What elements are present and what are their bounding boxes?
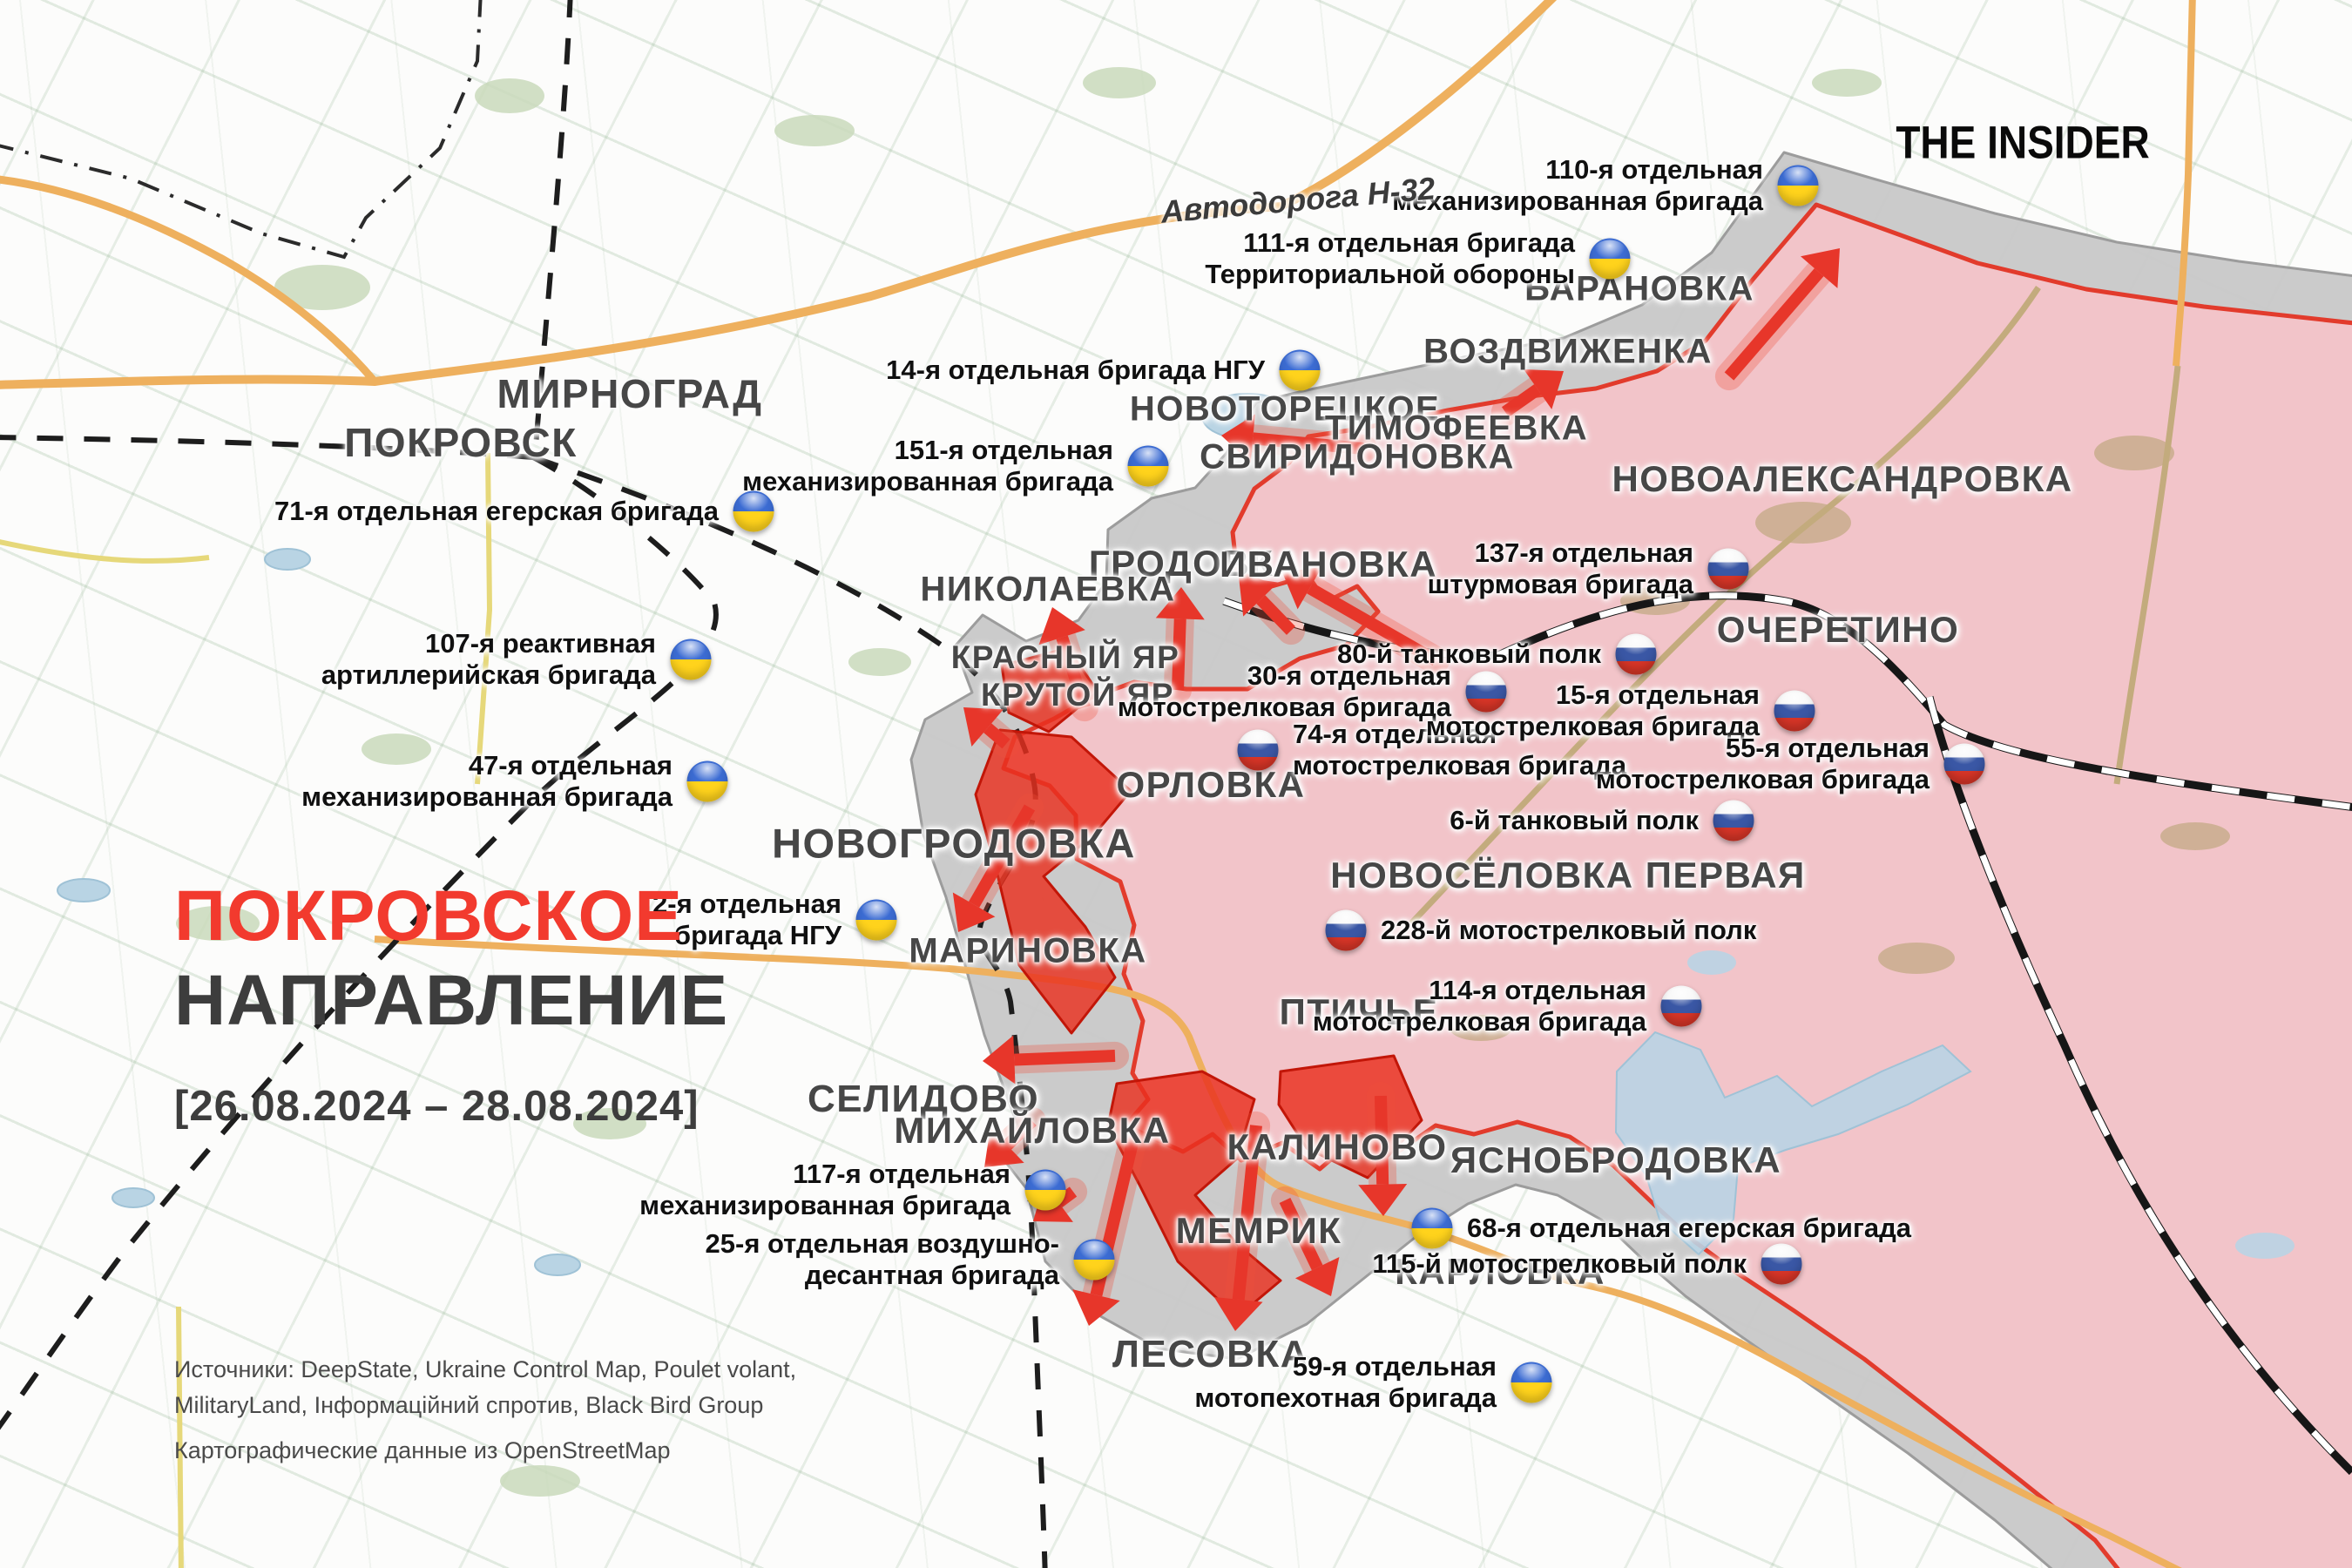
map-infographic: МИРНОГРАДПОКРОВСКБАРАНОВКАВОЗДВИЖЕНКАНОВ… xyxy=(0,0,2352,1568)
admin-boundary xyxy=(0,0,481,257)
railways xyxy=(0,0,1045,1568)
sources-line1: Источники: DeepState, Ukraine Control Ma… xyxy=(174,1352,796,1388)
title-line1: ПОКРОВСКОЕ xyxy=(174,875,728,959)
sources-block: Источники: DeepState, Ukraine Control Ma… xyxy=(174,1352,796,1469)
sources-line3: Картографические данные из OpenStreetMap xyxy=(174,1433,796,1469)
map-canvas xyxy=(0,0,2352,1568)
title-line2: НАПРАВЛЕНИЕ xyxy=(174,959,728,1044)
sources-line2: MilitaryLand, Інформаційний спротив, Bla… xyxy=(174,1388,796,1423)
title-date-range: [26.08.2024 – 28.08.2024] xyxy=(174,1082,728,1131)
title-block: ПОКРОВСКОЕ НАПРАВЛЕНИЕ [26.08.2024 – 28.… xyxy=(174,875,728,1131)
brand-logo: THE INSIDER xyxy=(1896,115,2149,169)
